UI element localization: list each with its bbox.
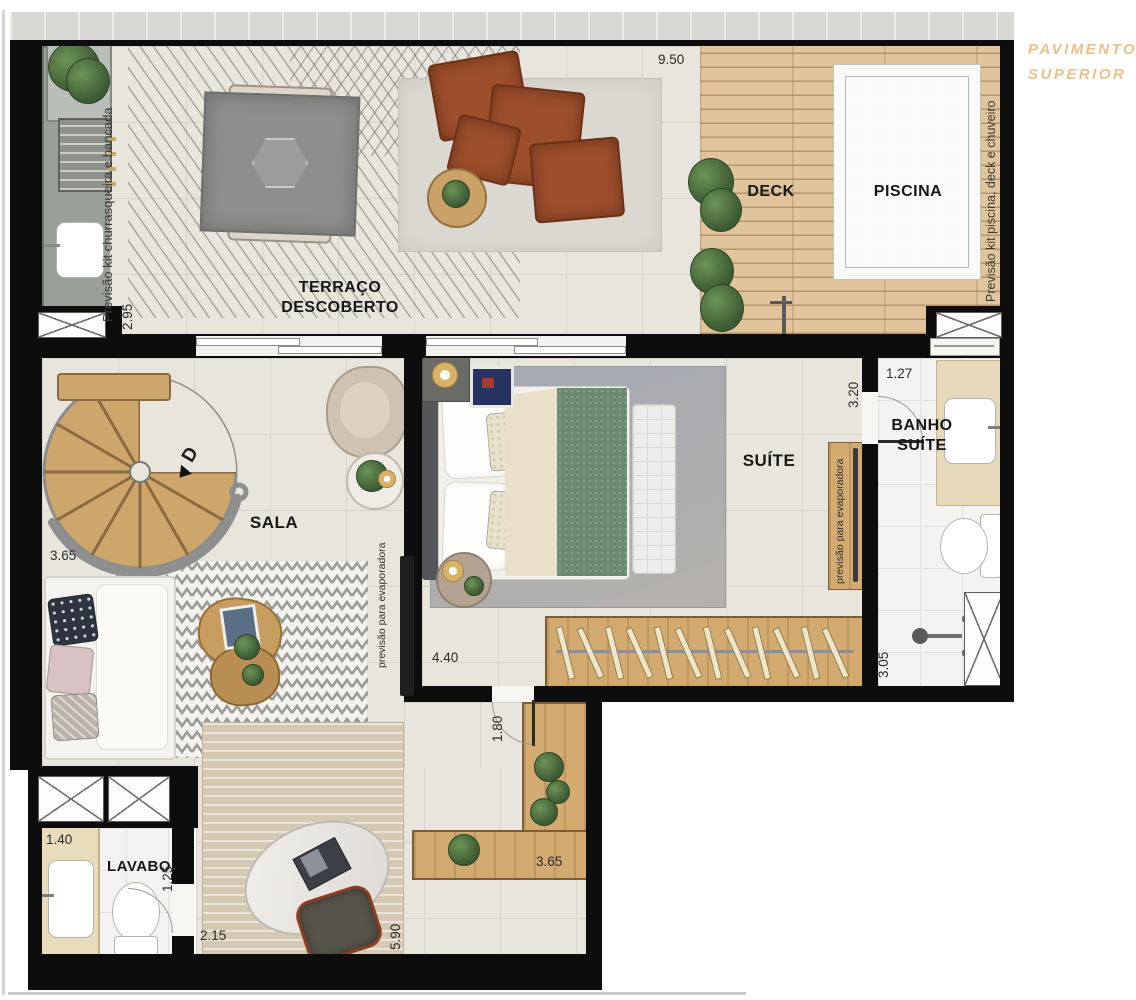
- hanger: [674, 627, 702, 679]
- wall-right-top: [1000, 40, 1014, 345]
- table-plant-2: [242, 664, 264, 686]
- hanger: [752, 626, 772, 680]
- tv-panel-sala: [400, 556, 414, 696]
- dim-banho-width: 1.27: [886, 366, 912, 381]
- wall-right-mid: [1000, 345, 1014, 702]
- dim-suite-width: 4.40: [432, 650, 458, 665]
- label-banho: BANHO SUÍTE: [880, 416, 964, 456]
- note-barbecue: Previsão kit churrasqueira e bancada: [100, 107, 115, 322]
- door-suite-leaf: [532, 700, 535, 746]
- terrace-sink: [56, 222, 104, 278]
- dim-bench-width: 3.65: [536, 854, 562, 869]
- shaft-banho: [964, 592, 1004, 686]
- bench-plant-3: [530, 798, 558, 826]
- hanger: [772, 627, 800, 679]
- shaft-top-left: [38, 312, 106, 338]
- wall-bottom: [28, 954, 602, 990]
- dim-hall-height: 5.90: [388, 924, 403, 950]
- dim-lavabo-width: 1.40: [46, 832, 72, 847]
- lavabo-faucet: [40, 894, 54, 897]
- dim-hall-width: 2.15: [200, 928, 226, 943]
- label-banho-line1: BANHO: [891, 417, 952, 434]
- dim-sala-width: 3.65: [50, 548, 76, 563]
- suite-round-table-lamp: [442, 560, 464, 582]
- sofa-cushion-gray: [50, 692, 99, 741]
- bed-headboard: [422, 382, 438, 580]
- lavabo-sink: [48, 860, 94, 938]
- label-terraco-line2: DESCOBERTO: [281, 299, 399, 316]
- door-suite-opening: [492, 686, 534, 702]
- hanger: [703, 626, 723, 680]
- window-banho: [930, 338, 1000, 356]
- dim-hall-depth: 1.80: [490, 716, 505, 742]
- label-terraco: TERRAÇO DESCOBERTO: [240, 278, 440, 318]
- hanger: [821, 627, 849, 679]
- sliding-door-sala: [196, 336, 382, 356]
- wall-art-detail: [482, 378, 494, 388]
- pool-water: [845, 76, 969, 268]
- property-line-bottom: [8, 992, 746, 995]
- closet-hangers: [556, 624, 854, 682]
- armchair-cushion: [340, 382, 390, 438]
- lounge-table-plant: [442, 180, 470, 208]
- title-line1: PAVIMENTO: [1028, 41, 1136, 58]
- page-title: PAVIMENTO SUPERIOR: [1028, 38, 1136, 88]
- hanger: [723, 627, 751, 679]
- property-line-left: [2, 10, 5, 995]
- dim-banho-depth: 3.05: [876, 652, 891, 678]
- dim-terrace-width: 9.50: [658, 52, 684, 67]
- suite-round-table: [436, 552, 492, 608]
- terrace-coping: [10, 12, 1014, 40]
- shaft-top-right: [936, 312, 1002, 338]
- wall-left: [10, 40, 42, 770]
- dim-suite-depth: 3.20: [846, 382, 861, 408]
- bench-plant-4: [448, 834, 480, 866]
- sofa-cushion-dark: [47, 593, 99, 647]
- banho-faucet: [988, 426, 1000, 429]
- bed-blanket-green: [557, 388, 627, 576]
- shower-head: [912, 628, 928, 644]
- banho-toilet-bowl: [940, 518, 988, 574]
- floor-plan: D: [0, 0, 1136, 1000]
- table-plant-1: [234, 634, 260, 660]
- bench-horizontal: [412, 830, 590, 880]
- sofa-cushion-pink: [46, 644, 95, 696]
- bed-blanket-cream: [505, 388, 559, 576]
- sliding-door-suite: [426, 336, 626, 356]
- bed-end-bench: [632, 404, 676, 574]
- label-terraco-line1: TERRAÇO: [299, 279, 382, 296]
- label-piscina: PISCINA: [862, 182, 954, 202]
- sala-sofa-seat: [96, 584, 168, 750]
- wall-hall-right: [586, 695, 602, 990]
- hanger: [556, 626, 576, 680]
- label-banho-line2: SUÍTE: [897, 437, 947, 454]
- door-banho-opening: [862, 392, 878, 444]
- shaft-hall-2: [108, 776, 170, 822]
- hanger: [801, 626, 821, 680]
- note-evap-sala: previsão para evaporadora: [376, 543, 388, 669]
- note-evap-suite: previsão para evaporadora: [834, 459, 846, 585]
- shaft-hall-1: [38, 776, 104, 822]
- suite-table-plant: [464, 576, 484, 596]
- note-pool: Previsão kit piscina, deck e chuveiro: [984, 101, 998, 302]
- hanger: [654, 626, 674, 680]
- evap-unit-suite: [853, 448, 858, 582]
- nightstand-lamp: [432, 362, 458, 388]
- title-line2: SUPERIOR: [1028, 66, 1126, 83]
- dim-terrace-depth: 2.95: [120, 304, 135, 330]
- bench-plant-1: [534, 752, 564, 782]
- side-table-lamp: [378, 470, 396, 488]
- dim-lavabo-depth: 1.25: [160, 866, 175, 892]
- window-banho-line: [934, 345, 994, 347]
- lounge-sofa-module-3: [529, 136, 626, 224]
- terrace-sink-faucet: [44, 244, 60, 247]
- bush-4: [700, 284, 744, 332]
- hanger: [605, 626, 625, 680]
- hanger: [625, 627, 653, 679]
- label-suite: SUÍTE: [734, 450, 804, 471]
- hanger: [576, 627, 604, 679]
- wall-top: [10, 40, 1014, 46]
- label-sala: SALA: [244, 512, 304, 533]
- planter-plant-2: [66, 58, 110, 104]
- label-deck: DECK: [736, 182, 806, 202]
- door-lavabo-opening: [172, 884, 194, 936]
- shower-arm: [922, 634, 962, 638]
- deck-shower-arm: [770, 301, 792, 304]
